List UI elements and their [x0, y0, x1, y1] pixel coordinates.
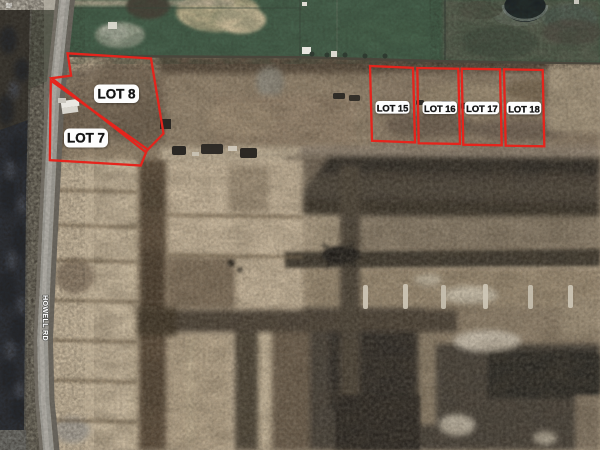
svg-text:LOT 18: LOT 18: [508, 104, 540, 114]
svg-text:LOT 17: LOT 17: [466, 104, 498, 114]
svg-text:LOT 7: LOT 7: [67, 131, 105, 146]
svg-text:LOT 8: LOT 8: [98, 87, 136, 102]
svg-text:HOWELL RD: HOWELL RD: [41, 295, 50, 341]
svg-text:LOT 15: LOT 15: [377, 104, 409, 114]
svg-text:LOT 16: LOT 16: [424, 104, 456, 114]
